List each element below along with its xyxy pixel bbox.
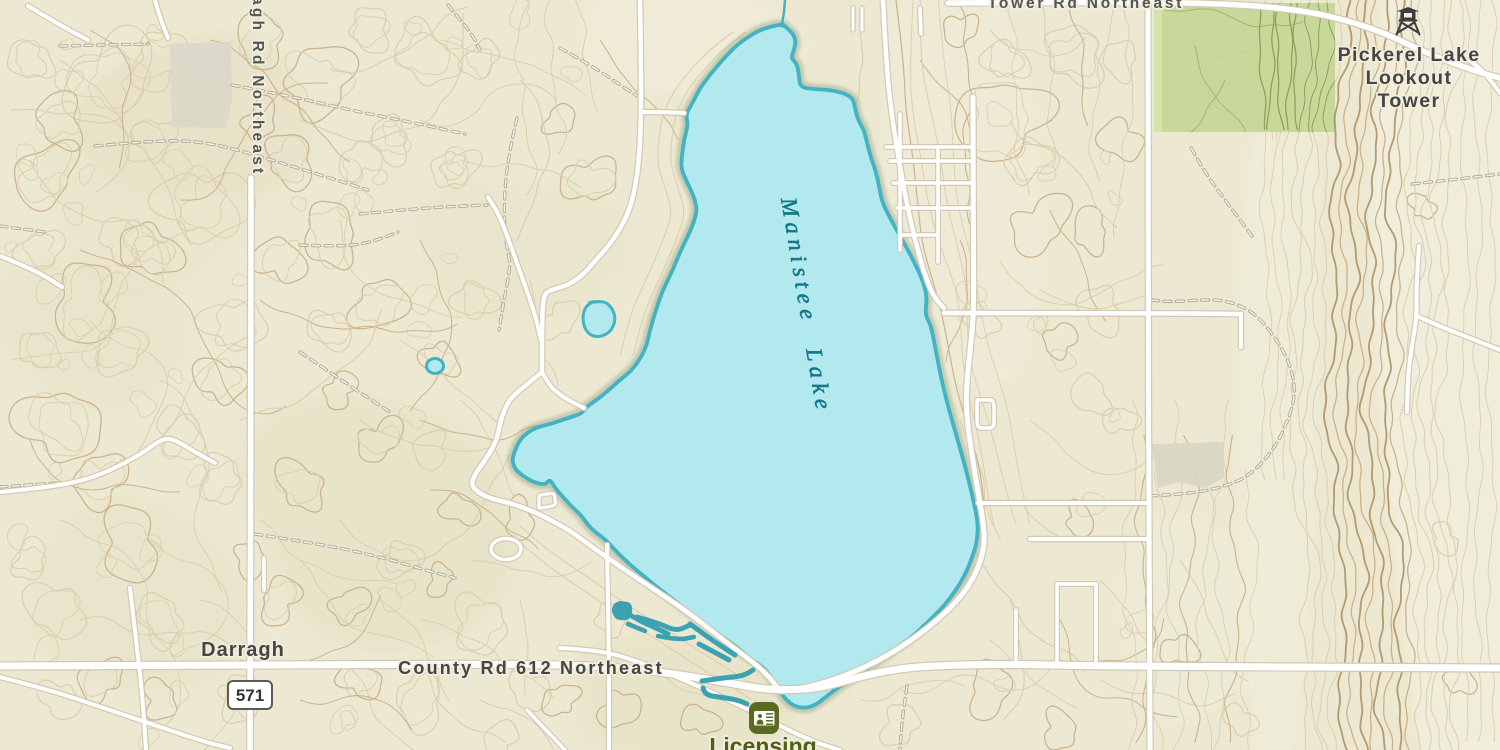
- svg-text:agh Rd Northeast: agh Rd Northeast: [249, 0, 266, 176]
- svg-text:Tower: Tower: [1378, 90, 1441, 112]
- svg-text:Licensing: Licensing: [709, 733, 816, 750]
- svg-text:571: 571: [236, 686, 264, 705]
- svg-text:County Rd 612 Northeast: County Rd 612 Northeast: [398, 658, 664, 678]
- svg-text:Pickerel Lake: Pickerel Lake: [1338, 44, 1481, 66]
- svg-text:Darragh: Darragh: [201, 639, 285, 661]
- svg-text:Lookout: Lookout: [1366, 67, 1453, 89]
- svg-text:Tower Rd Northeast: Tower Rd Northeast: [988, 0, 1185, 12]
